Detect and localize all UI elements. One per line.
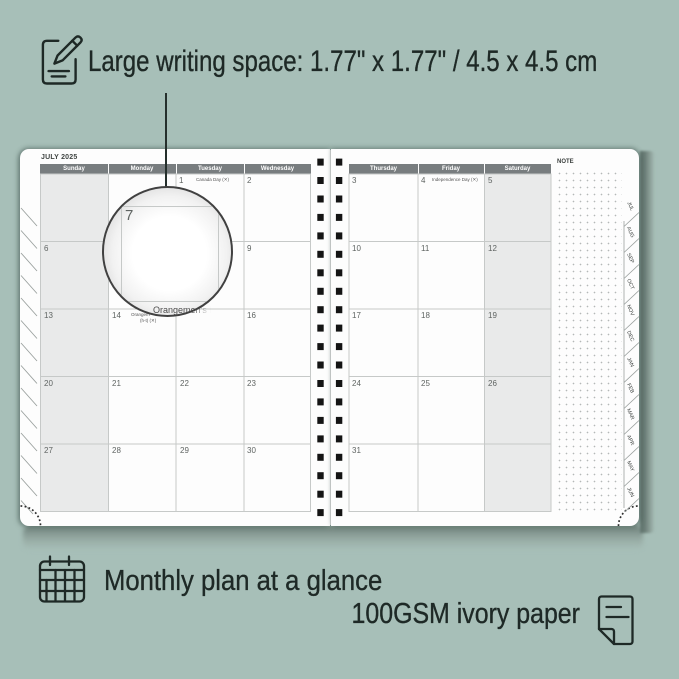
svg-text:MAR: MAR	[625, 408, 635, 421]
svg-text:SEP: SEP	[625, 252, 635, 264]
svg-text:JUN: JUN	[625, 487, 635, 499]
svg-text:FEB: FEB	[625, 383, 635, 395]
svg-text:APR: APR	[625, 434, 635, 446]
svg-text:OCT: OCT	[625, 278, 635, 291]
svg-text:DEC: DEC	[625, 330, 635, 343]
svg-text:JUL: JUL	[625, 201, 634, 212]
svg-text:MAY: MAY	[625, 460, 635, 473]
svg-text:NOV: NOV	[625, 304, 635, 317]
svg-text:AUG: AUG	[625, 226, 635, 239]
svg-text:JAN: JAN	[625, 357, 635, 369]
